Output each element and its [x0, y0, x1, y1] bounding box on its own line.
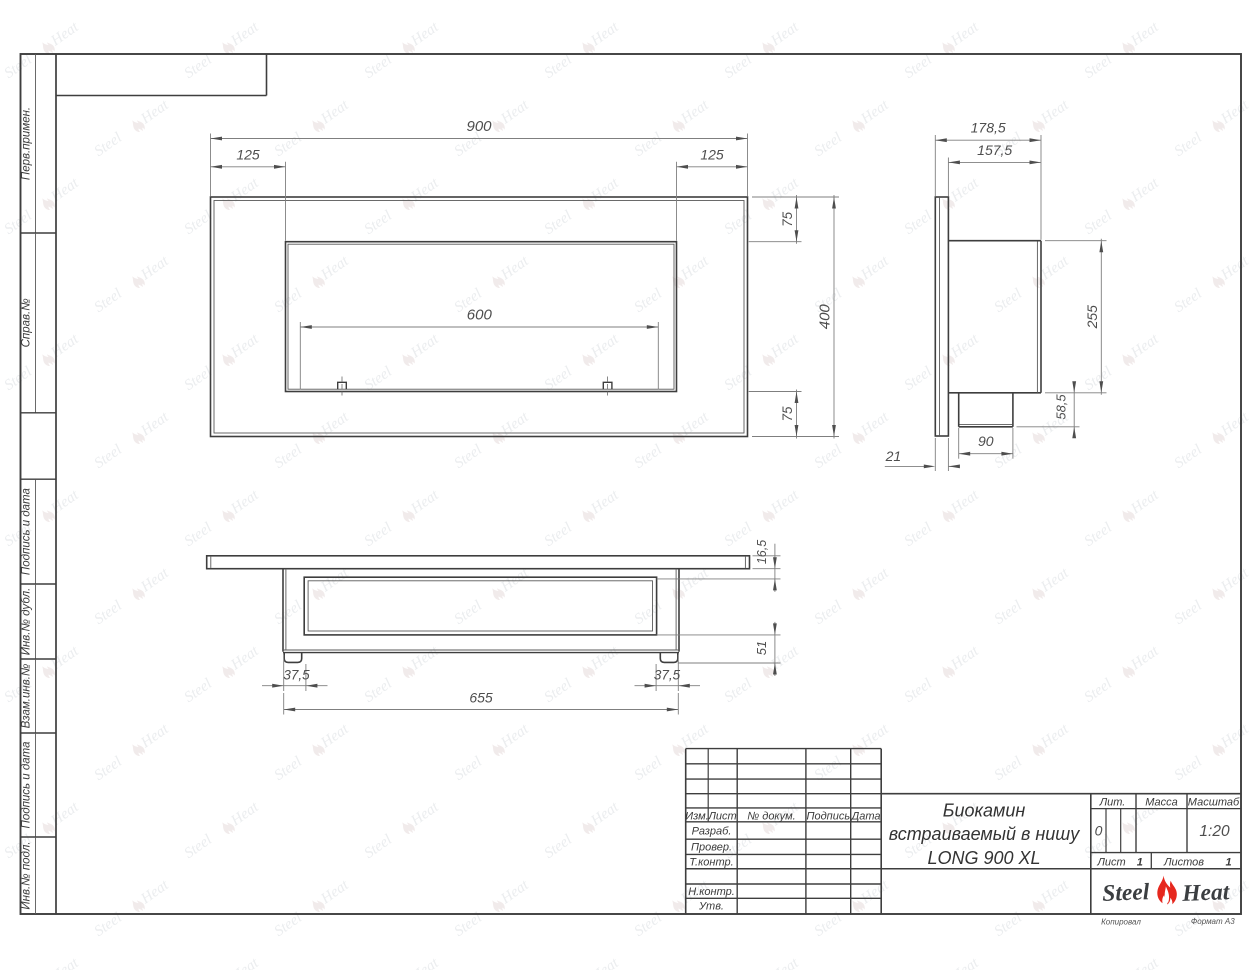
svg-text:Перв.примен.: Перв.примен.: [21, 107, 33, 180]
svg-text:37,5: 37,5: [654, 668, 681, 683]
svg-text:Разраб.: Разраб.: [692, 826, 732, 838]
svg-text:600: 600: [467, 307, 493, 324]
svg-text:1: 1: [1225, 856, 1231, 868]
svg-text:Биокамин: Биокамин: [943, 801, 1026, 821]
svg-text:Масса: Масса: [1145, 797, 1178, 809]
svg-text:Лист: Лист: [707, 811, 736, 823]
svg-text:0: 0: [1095, 823, 1103, 839]
svg-text:157,5: 157,5: [977, 142, 1012, 158]
svg-text:Н.контр.: Н.контр.: [688, 886, 735, 898]
svg-text:Провер.: Провер.: [691, 842, 732, 854]
svg-text:58,5: 58,5: [1054, 394, 1069, 420]
svg-text:Формат А3: Формат А3: [1191, 917, 1235, 926]
svg-text:1:20: 1:20: [1199, 823, 1230, 840]
svg-text:900: 900: [466, 118, 492, 135]
svg-text:75: 75: [780, 406, 795, 422]
svg-text:125: 125: [236, 147, 260, 163]
svg-text:Т.контр.: Т.контр.: [689, 856, 733, 868]
svg-text:Steel: Steel: [1102, 879, 1150, 907]
svg-text:51: 51: [754, 641, 769, 655]
svg-text:90: 90: [978, 433, 994, 449]
svg-text:21: 21: [885, 448, 902, 464]
svg-text:Инв.№ дубл.: Инв.№ дубл.: [21, 588, 33, 656]
svg-text:655: 655: [469, 690, 493, 706]
svg-text:37,5: 37,5: [283, 668, 310, 683]
svg-text:255: 255: [1084, 305, 1100, 330]
svg-text:Копировал: Копировал: [1101, 918, 1141, 927]
svg-text:Взам.инв.№: Взам.инв.№: [21, 663, 33, 728]
svg-text:Подпись: Подпись: [806, 811, 850, 823]
svg-text:Подпись и дата: Подпись и дата: [21, 742, 33, 829]
svg-text:LONG 900 XL: LONG 900 XL: [927, 848, 1040, 868]
svg-text:Утв.: Утв.: [698, 901, 724, 913]
svg-text:178,5: 178,5: [971, 120, 1006, 136]
svg-text:Лист: Лист: [1096, 856, 1125, 868]
svg-text:Масштаб: Масштаб: [1188, 797, 1240, 809]
svg-text:1: 1: [1137, 856, 1143, 868]
svg-text:Инв.№ подл.: Инв.№ подл.: [21, 841, 33, 909]
svg-text:Heat: Heat: [1181, 879, 1231, 907]
svg-text:Изм.: Изм.: [685, 811, 708, 823]
svg-text:Дата: Дата: [849, 811, 880, 823]
svg-text:16,5: 16,5: [755, 540, 769, 564]
svg-text:№ докум.: № докум.: [747, 811, 795, 823]
svg-text:Лит.: Лит.: [1099, 797, 1126, 809]
svg-text:встраиваемый в нишу: встраиваемый в нишу: [889, 824, 1080, 844]
svg-text:400: 400: [817, 304, 834, 330]
svg-text:Справ.№: Справ.№: [21, 298, 33, 348]
svg-text:75: 75: [780, 211, 795, 227]
svg-text:Листов: Листов: [1163, 856, 1204, 868]
svg-text:Подпись и дата: Подпись и дата: [21, 488, 33, 575]
svg-text:125: 125: [700, 147, 724, 163]
